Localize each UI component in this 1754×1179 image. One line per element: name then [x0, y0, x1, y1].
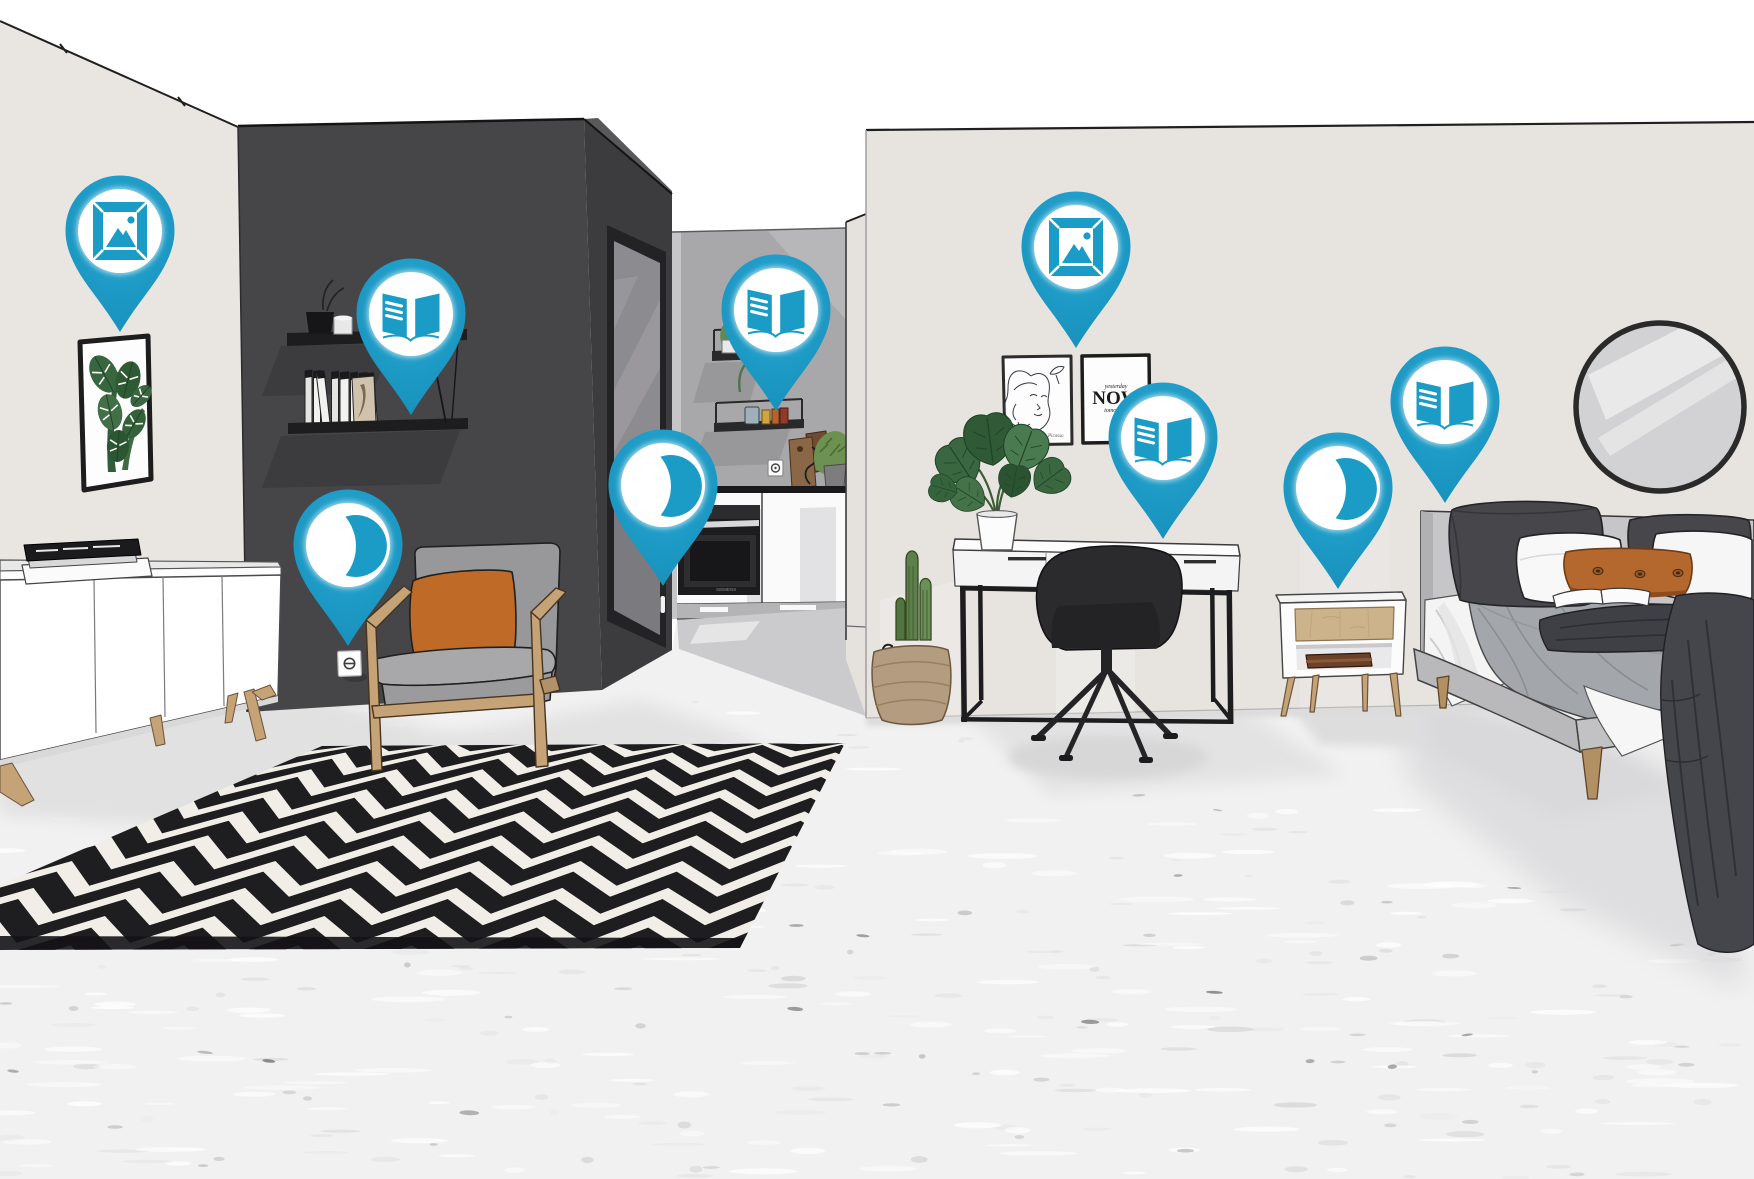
- svg-text:Picasso: Picasso: [1047, 434, 1064, 439]
- svg-text:SIEMENS: SIEMENS: [716, 587, 736, 592]
